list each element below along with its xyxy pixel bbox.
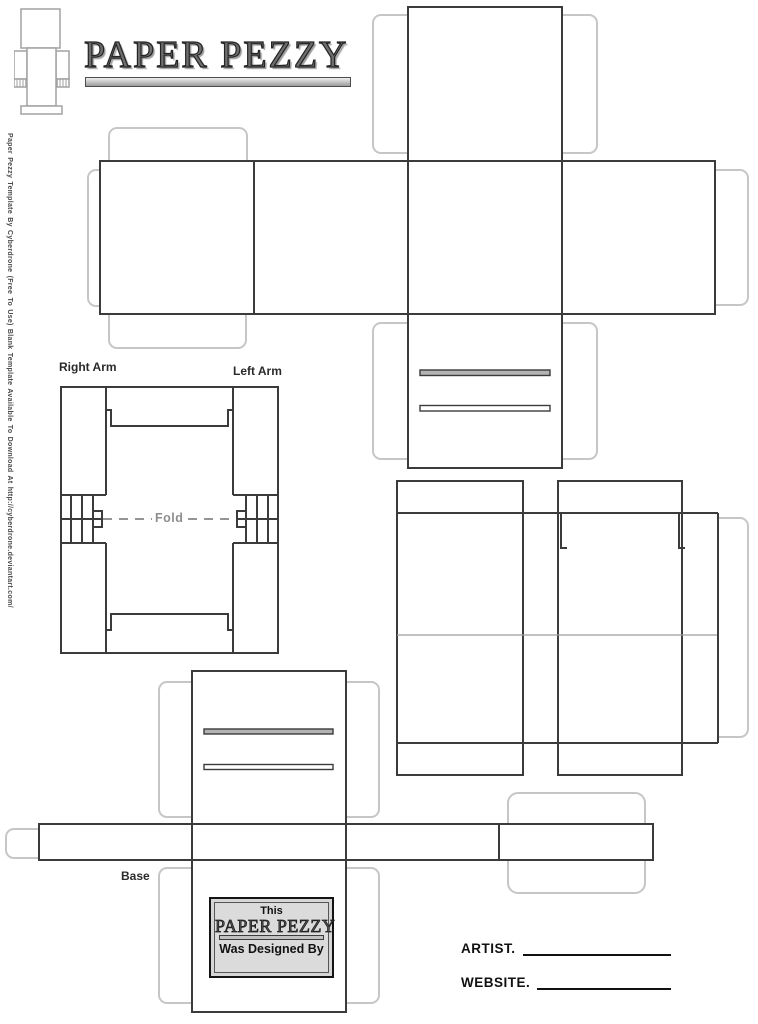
torso-slot-1 [204, 729, 333, 734]
website-label: WEBSITE. [461, 975, 530, 990]
website-row: WEBSITE. [461, 975, 671, 990]
torso-slot-2 [204, 765, 333, 770]
designed-by-logo: PAPER PEZZY [215, 917, 328, 935]
papercraft-template-drawing [0, 0, 758, 1024]
artist-label: ARTIST. [461, 941, 516, 956]
designed-by-line2: Was Designed By [215, 942, 328, 956]
right-arm-label: Right Arm [59, 360, 117, 374]
website-blank-line [537, 975, 671, 990]
artist-row: ARTIST. [461, 941, 671, 956]
designed-by-inner-frame: This PAPER PEZZY Was Designed By [214, 902, 329, 973]
left-arm-label: Left Arm [233, 364, 282, 378]
head-slot-1 [420, 370, 550, 376]
papercraft-template-page: PAPER PEZZY Paper Pezzy Template By Cybe… [0, 0, 758, 1024]
designed-by-box: This PAPER PEZZY Was Designed By [209, 897, 334, 978]
head-slot-2 [420, 406, 550, 412]
fold-label: Fold [155, 511, 183, 525]
artist-blank-line [523, 941, 671, 956]
base-label: Base [121, 869, 150, 883]
